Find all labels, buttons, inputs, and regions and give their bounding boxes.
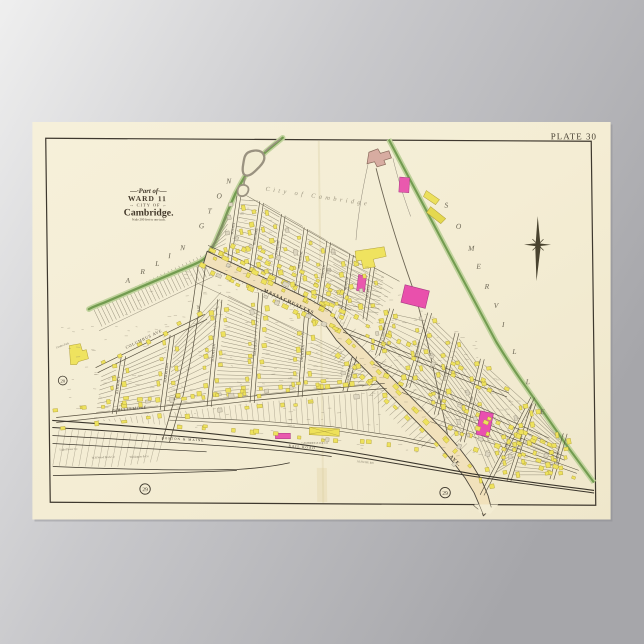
svg-text:CAMBRIDGE ICE CO: CAMBRIDGE ICE CO: [301, 442, 328, 445]
svg-text:I: I: [501, 320, 505, 329]
svg-text:E: E: [475, 262, 481, 271]
svg-text:L: L: [525, 377, 530, 386]
svg-text:R: R: [139, 267, 145, 276]
svg-text:L: L: [154, 259, 159, 268]
svg-text:PLATE 30: PLATE 30: [551, 131, 597, 141]
svg-text:G: G: [199, 221, 205, 230]
svg-text:29: 29: [442, 491, 448, 497]
svg-text:O: O: [456, 222, 462, 231]
svg-text:L: L: [511, 347, 516, 356]
svg-text:I: I: [167, 251, 171, 260]
svg-text:M: M: [467, 244, 475, 253]
svg-text:29: 29: [142, 487, 148, 493]
svg-text:S: S: [444, 201, 448, 210]
svg-text:O: O: [216, 191, 222, 200]
svg-text:R: R: [483, 282, 489, 291]
svg-text:20: 20: [60, 379, 65, 384]
svg-text:A: A: [124, 276, 130, 285]
svg-text:Scale 200 feet to one inch.: Scale 200 feet to one inch.: [132, 217, 166, 221]
